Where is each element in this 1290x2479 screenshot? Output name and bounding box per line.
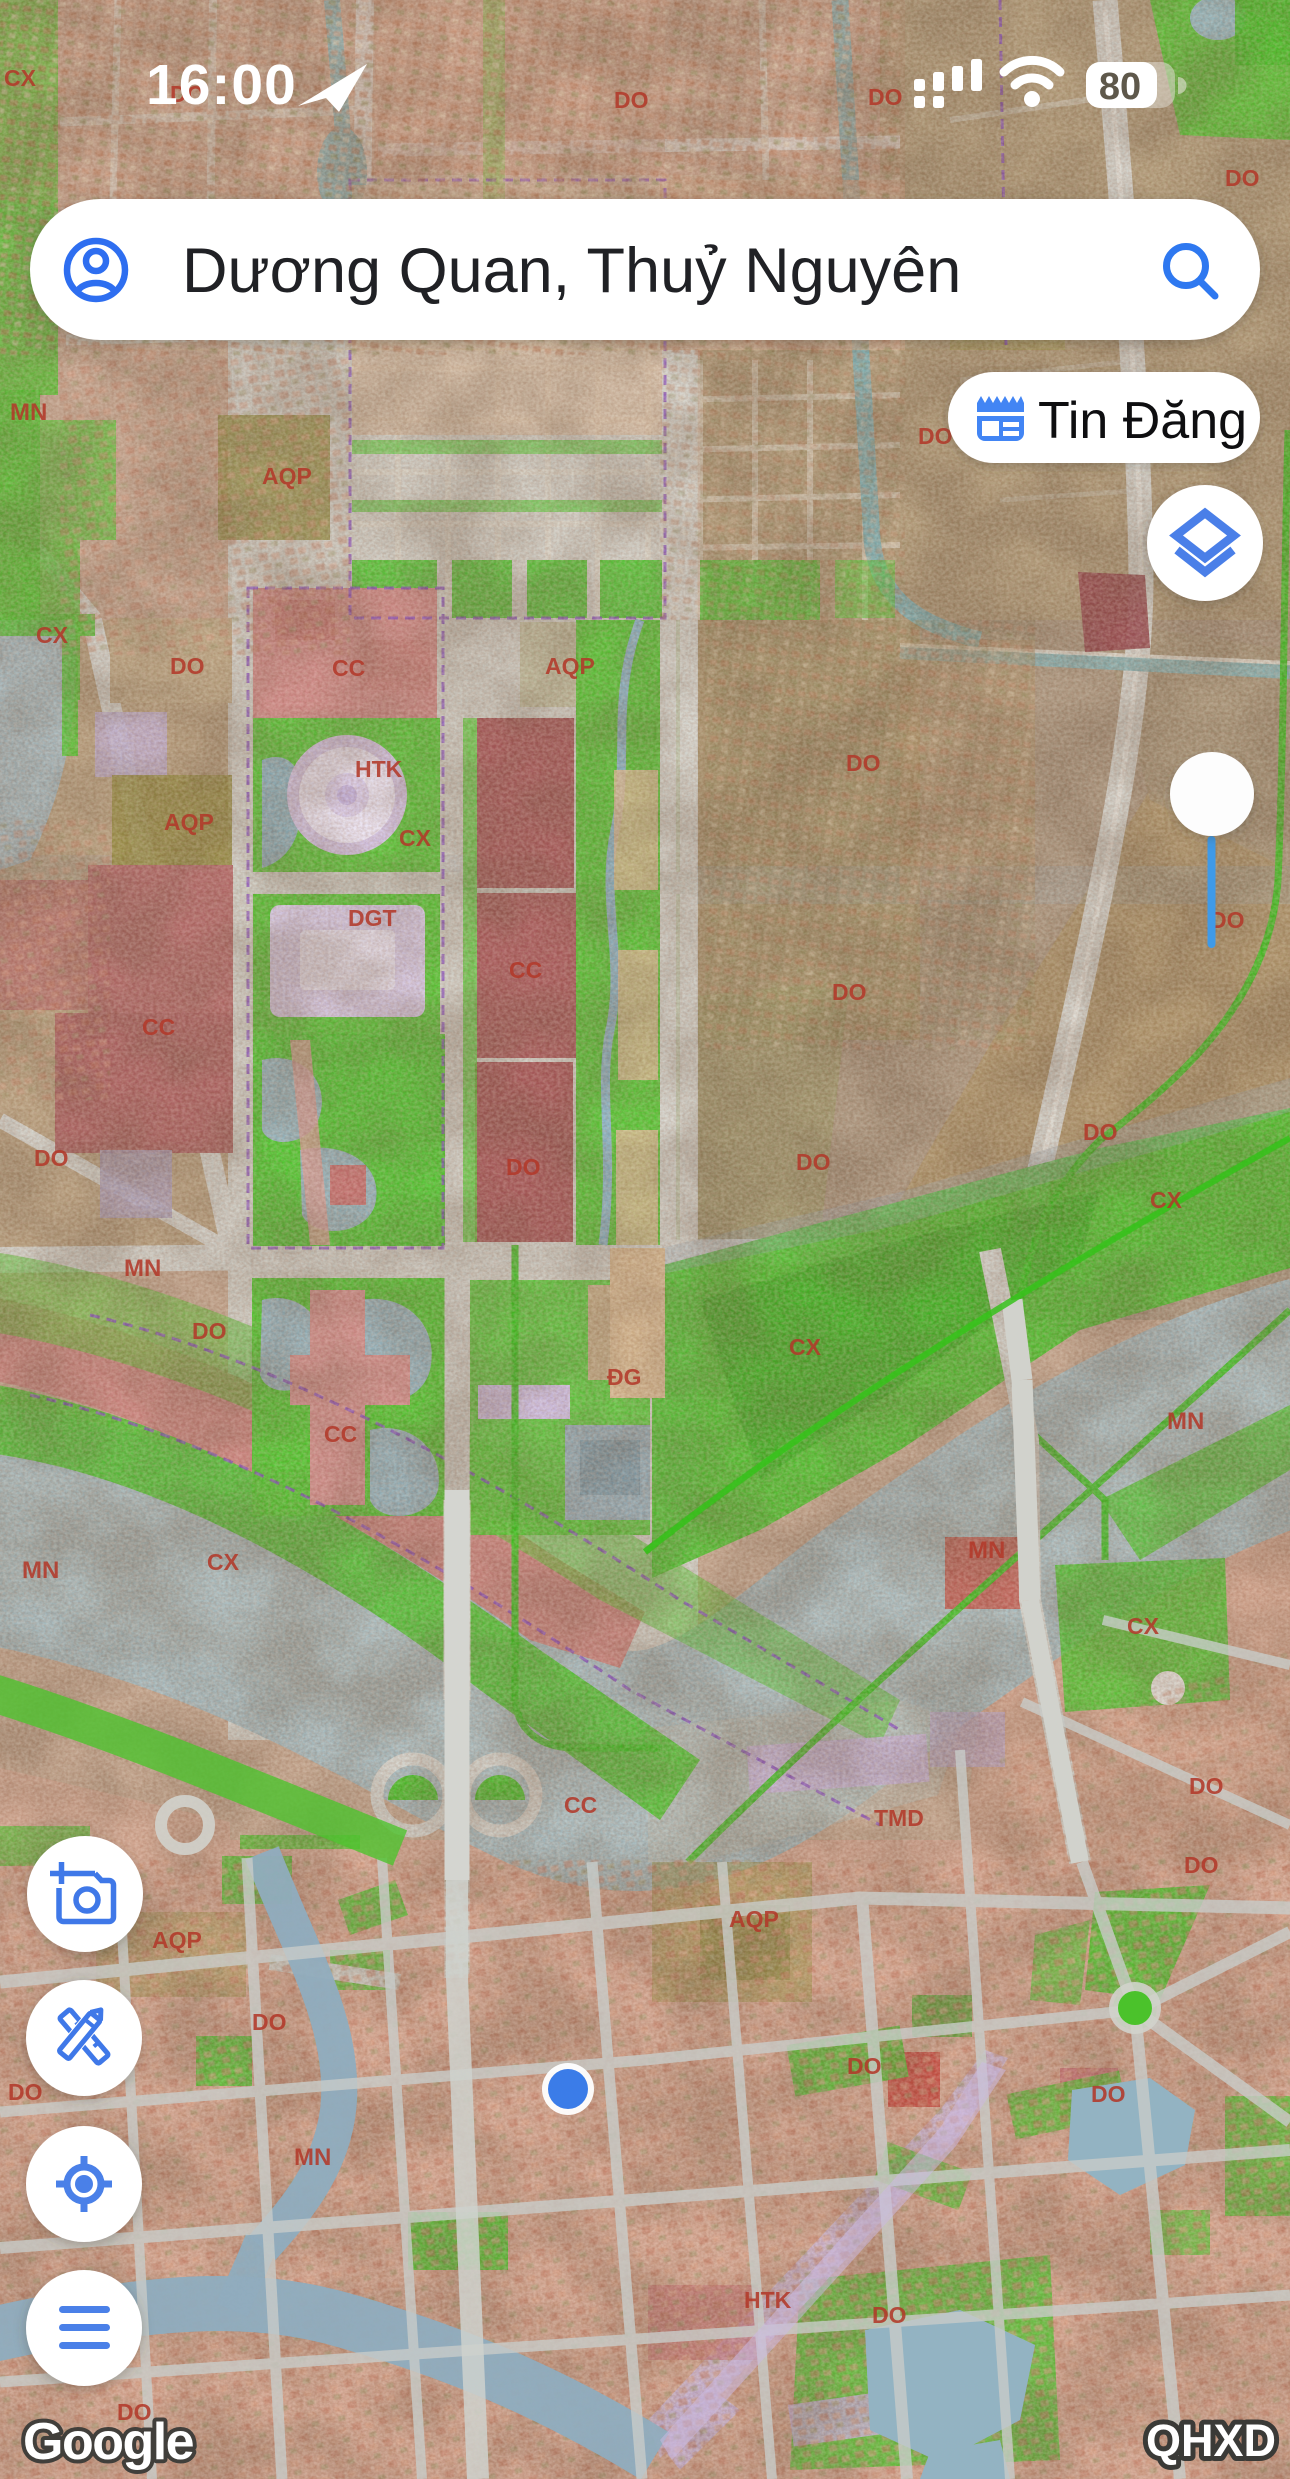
svg-text:DO: DO [252,2009,287,2035]
svg-text:MN: MN [1167,1408,1204,1435]
svg-text:CX: CX [1150,1187,1183,1213]
svg-text:Tin Đăng: Tin Đăng [1038,392,1247,450]
svg-text:80: 80 [1099,66,1141,108]
svg-text:DO: DO [1184,1852,1219,1878]
svg-text:AQP: AQP [545,653,595,679]
svg-text:CX: CX [36,622,69,648]
svg-text:QHXD: QHXD [1146,2415,1276,2466]
svg-text:CX: CX [207,1549,240,1575]
svg-text:MN: MN [294,2144,331,2171]
svg-text:DO: DO [8,2079,43,2105]
svg-text:DO: DO [34,1145,69,1171]
svg-text:CX: CX [399,825,432,851]
svg-text:Google: Google [23,2413,194,2471]
svg-text:DO: DO [846,750,881,776]
svg-text:MN: MN [968,1537,1005,1564]
svg-text:Dương Quan, Thuỷ Nguyên: Dương Quan, Thuỷ Nguyên [182,236,961,306]
svg-text:DGT: DGT [348,905,397,931]
svg-text:DO: DO [872,2302,907,2328]
svg-text:DO: DO [847,2053,882,2079]
svg-text:DO: DO [868,84,903,110]
svg-text:CC: CC [509,957,542,983]
svg-text:ĐG: ĐG [607,1364,642,1390]
svg-text:DO: DO [1091,2081,1126,2107]
svg-text:CX: CX [789,1334,822,1360]
svg-text:DO: DO [832,979,867,1005]
svg-text:CC: CC [564,1792,597,1818]
svg-text:HTK: HTK [744,2287,792,2313]
svg-text:TMD: TMD [874,1805,924,1831]
svg-text:DO: DO [192,1318,227,1344]
svg-text:AQP: AQP [729,1906,779,1932]
svg-text:CX: CX [1127,1613,1160,1639]
svg-text:DO: DO [796,1149,831,1175]
svg-text:CC: CC [324,1421,357,1447]
svg-text:16:00: 16:00 [146,53,297,117]
svg-text:DO: DO [1189,1773,1224,1799]
svg-text:CC: CC [142,1014,175,1040]
svg-text:DO: DO [614,87,649,113]
svg-text:AQP: AQP [152,1927,202,1953]
svg-text:MN: MN [10,399,47,426]
svg-text:MN: MN [124,1255,161,1282]
svg-text:CC: CC [332,655,365,681]
svg-text:DO: DO [918,423,953,449]
svg-text:DO: DO [1225,165,1260,191]
svg-text:AQP: AQP [262,463,312,489]
svg-text:DO: DO [170,653,205,679]
svg-text:MN: MN [22,1557,59,1584]
svg-text:CX: CX [4,65,37,91]
svg-text:DO: DO [1083,1119,1118,1145]
svg-text:AQP: AQP [164,809,214,835]
svg-text:HTK: HTK [355,756,403,782]
svg-text:DO: DO [506,1154,541,1180]
